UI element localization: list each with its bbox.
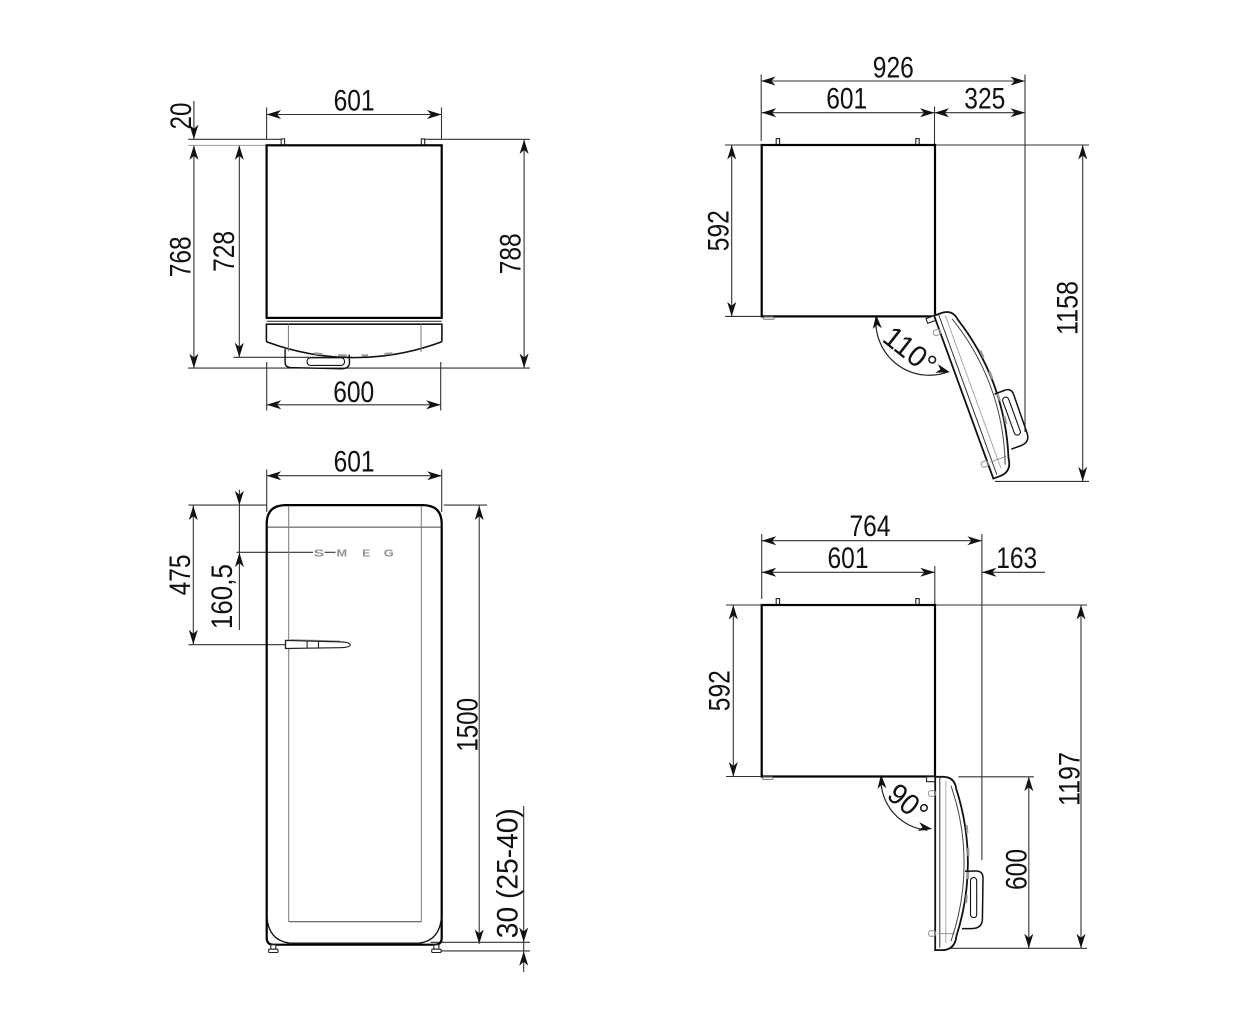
svg-text:30 (25-40): 30 (25-40) [492,808,525,938]
svg-text:600: 600 [1000,849,1033,890]
svg-text:592: 592 [702,210,735,251]
svg-text:325: 325 [964,83,1005,116]
svg-text:20: 20 [165,103,198,130]
svg-text:926: 926 [873,51,914,84]
svg-text:788: 788 [494,233,527,274]
svg-text:764: 764 [850,510,891,543]
svg-text:728: 728 [208,231,241,272]
svg-text:S: S [314,549,325,560]
svg-text:M: M [337,549,348,560]
svg-text:E: E [362,549,370,560]
svg-text:600: 600 [333,376,374,409]
svg-text:601: 601 [828,542,869,575]
svg-text:163: 163 [996,542,1037,575]
svg-text:768: 768 [165,236,198,277]
svg-text:475: 475 [164,554,197,595]
svg-text:160,5: 160,5 [206,564,239,629]
svg-text:601: 601 [334,84,375,117]
svg-text:1197: 1197 [1053,752,1086,806]
svg-text:G: G [384,549,394,560]
svg-text:1158: 1158 [1052,281,1085,335]
svg-text:601: 601 [334,445,375,478]
svg-text:1500: 1500 [451,698,484,752]
svg-text:592: 592 [703,670,736,711]
svg-text:601: 601 [826,83,867,116]
